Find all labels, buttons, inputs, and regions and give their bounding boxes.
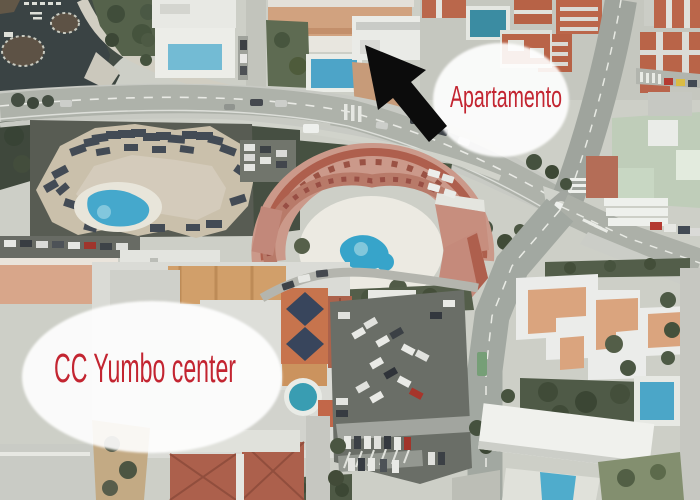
- svg-text:CC Yumbo center: CC Yumbo center: [54, 345, 236, 391]
- svg-text:Apartamento: Apartamento: [450, 79, 562, 114]
